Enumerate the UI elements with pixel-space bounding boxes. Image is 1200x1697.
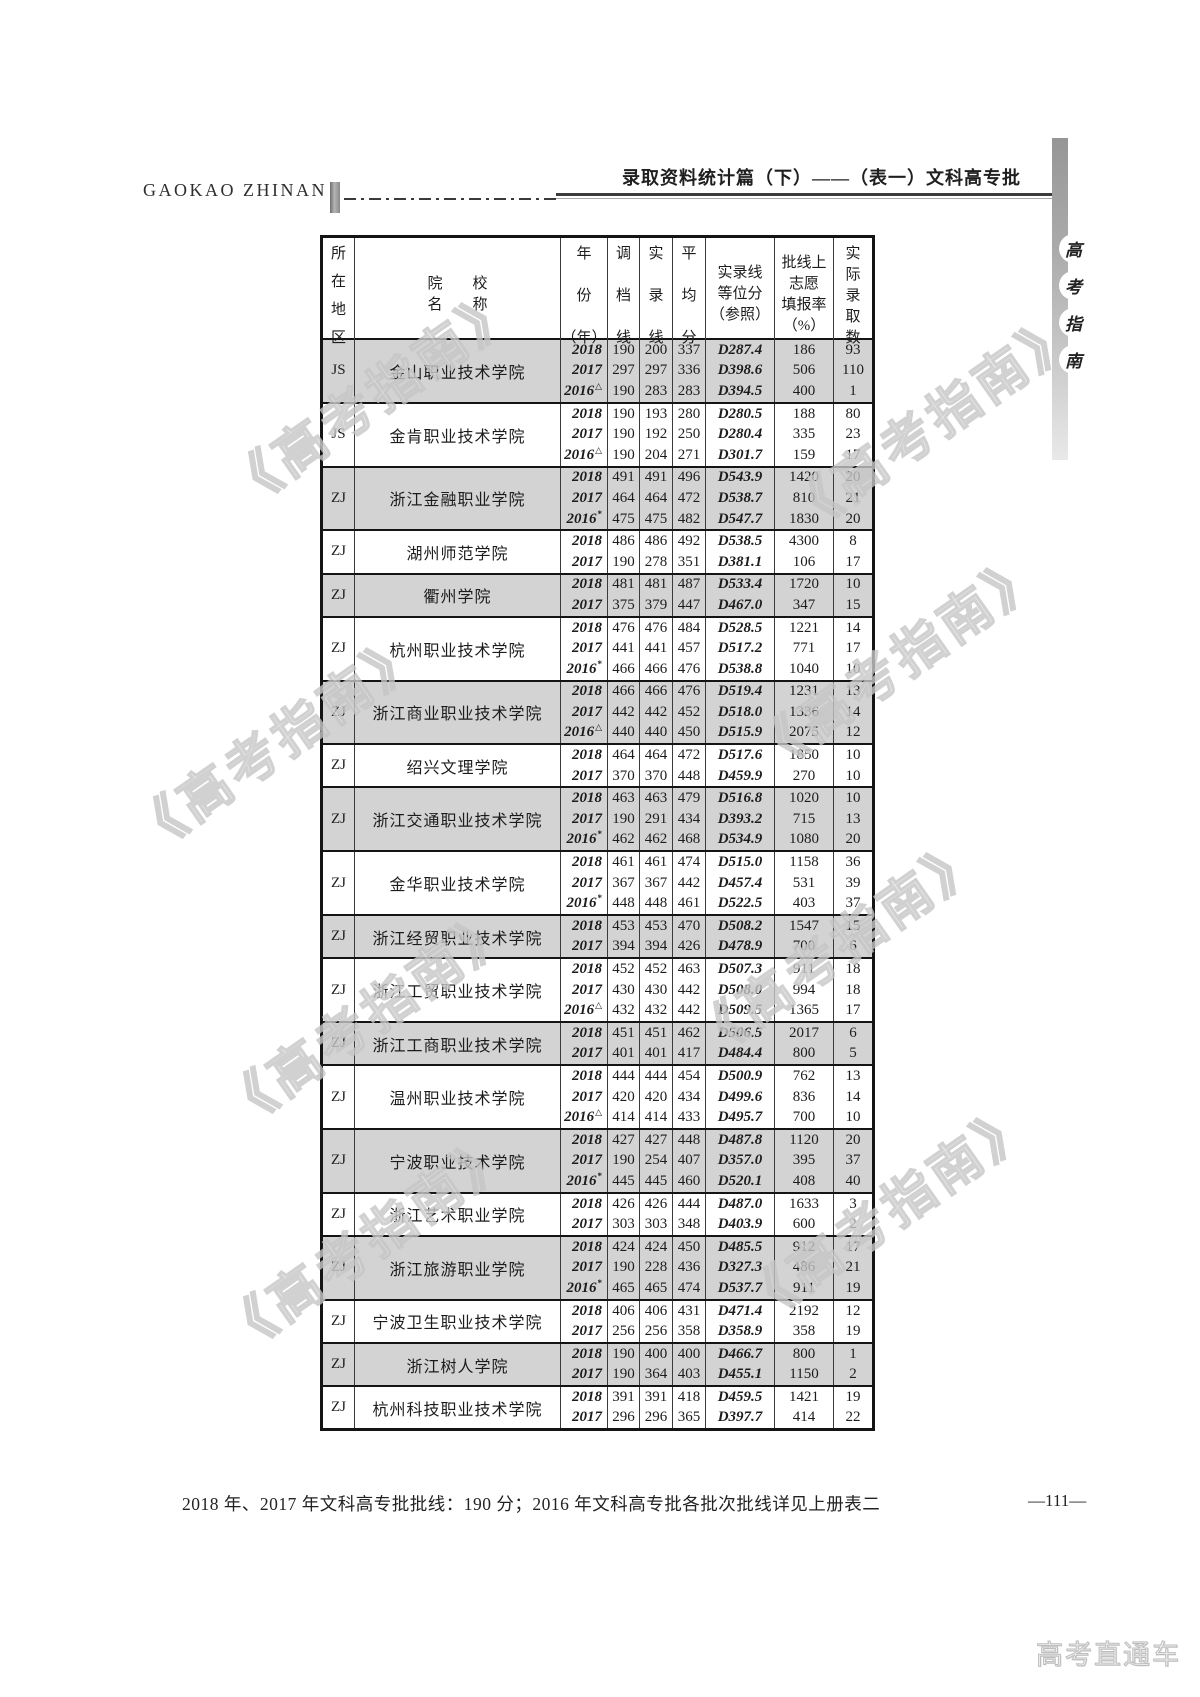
table-row-group: ZJ浙江工商职业技术学院2018451451462D506.5201762017… xyxy=(323,1021,872,1064)
luqu-count: 40 xyxy=(834,1171,872,1192)
sidebar-band xyxy=(1052,138,1068,460)
diaodang-score: 475 xyxy=(608,509,640,530)
college-name: 浙江旅游职业学院 xyxy=(355,1237,561,1299)
shilu-score: 453 xyxy=(640,916,673,937)
year-value: 2016△ xyxy=(561,381,608,402)
pingjun-score: 496 xyxy=(673,468,706,489)
diaodang-score: 461 xyxy=(608,852,640,873)
table-row-group: ZJ浙江树人学院2018190400400D466.78001201719036… xyxy=(323,1342,872,1385)
year-value: 2018 xyxy=(561,682,608,703)
region-code: ZJ xyxy=(323,618,355,680)
dengwei-score: D547.7 xyxy=(706,509,775,530)
tianbao-rate: 1040 xyxy=(775,659,834,680)
year-value: 2016* xyxy=(561,830,608,851)
shilu-score: 486 xyxy=(640,531,673,552)
diaodang-score: 466 xyxy=(608,682,640,703)
shilu-score: 291 xyxy=(640,809,673,830)
dengwei-score: D520.1 xyxy=(706,1171,775,1192)
dengwei-score: D499.6 xyxy=(706,1087,775,1108)
pingjun-score: 351 xyxy=(673,552,706,573)
luqu-count: 20 xyxy=(834,509,872,530)
year-value: 2018 xyxy=(561,340,608,361)
year-value: 2017 xyxy=(561,809,608,830)
pingjun-score: 461 xyxy=(673,893,706,914)
dengwei-score: D538.7 xyxy=(706,488,775,509)
table-row-group: ZJ绍兴文理学院2018464464472D517.61850102017370… xyxy=(323,743,872,786)
region-code: ZJ xyxy=(323,959,355,1021)
shilu-score: 427 xyxy=(640,1130,673,1151)
tianbao-rate: 2192 xyxy=(775,1301,834,1322)
tianbao-rate: 414 xyxy=(775,1408,834,1429)
table-row-group: ZJ浙江金融职业学院2018491491496D543.914202020174… xyxy=(323,466,872,530)
table-row-group: ZJ杭州科技职业技术学院2018391391418D459.5142119201… xyxy=(323,1385,872,1428)
pingjun-score: 336 xyxy=(673,361,706,382)
year-value: 2017 xyxy=(561,702,608,723)
tianbao-rate: 1020 xyxy=(775,788,834,809)
tianbao-rate: 4300 xyxy=(775,531,834,552)
pingjun-score: 450 xyxy=(673,1237,706,1258)
region-code: ZJ xyxy=(323,1023,355,1064)
shilu-score: 401 xyxy=(640,1044,673,1065)
pingjun-score: 431 xyxy=(673,1301,706,1322)
tianbao-rate: 1830 xyxy=(775,509,834,530)
brand-text: GAOKAO ZHINAN xyxy=(143,180,327,201)
table-row-group: ZJ浙江交通职业技术学院2018463463479D516.8102010201… xyxy=(323,786,872,850)
shilu-score: 204 xyxy=(640,445,673,466)
luqu-count: 17 xyxy=(834,445,872,466)
tianbao-rate: 1120 xyxy=(775,1130,834,1151)
table-row-group: ZJ温州职业技术学院2018444444454D500.976213201742… xyxy=(323,1064,872,1128)
year-value: 2016* xyxy=(561,1278,608,1299)
year-value: 2017 xyxy=(561,424,608,445)
luqu-count: 36 xyxy=(834,852,872,873)
shilu-score: 476 xyxy=(640,618,673,639)
diaodang-score: 463 xyxy=(608,788,640,809)
year-value: 2017 xyxy=(561,488,608,509)
pingjun-score: 450 xyxy=(673,723,706,744)
dengwei-score: D538.8 xyxy=(706,659,775,680)
admissions-table: 所在地区院 校名 称年份（年）调档线实录线平均分实录线等位分（参照）批线上志愿填… xyxy=(320,235,875,1431)
sidebar-char-zhi: 指 xyxy=(1059,308,1088,337)
year-value: 2017 xyxy=(561,1044,608,1065)
luqu-count: 21 xyxy=(834,1258,872,1279)
dengwei-score: D543.9 xyxy=(706,468,775,489)
pingjun-score: 434 xyxy=(673,809,706,830)
dengwei-score: D478.9 xyxy=(706,937,775,958)
header-year: 年份（年） xyxy=(561,238,608,351)
luqu-count: 18 xyxy=(834,959,872,980)
pingjun-score: 479 xyxy=(673,788,706,809)
shilu-score: 370 xyxy=(640,766,673,787)
year-value: 2017 xyxy=(561,1321,608,1342)
tianbao-rate: 762 xyxy=(775,1066,834,1087)
diaodang-score: 190 xyxy=(608,1365,640,1386)
tianbao-rate: 408 xyxy=(775,1171,834,1192)
pingjun-score: 454 xyxy=(673,1066,706,1087)
year-value: 2016△ xyxy=(561,1107,608,1128)
shilu-score: 367 xyxy=(640,873,673,894)
luqu-count: 13 xyxy=(834,682,872,703)
pingjun-score: 470 xyxy=(673,916,706,937)
shilu-score: 475 xyxy=(640,509,673,530)
region-code: ZJ xyxy=(323,1344,355,1385)
luqu-count: 5 xyxy=(834,1044,872,1065)
shilu-score: 464 xyxy=(640,745,673,766)
pingjun-score: 365 xyxy=(673,1408,706,1429)
year-value: 2017 xyxy=(561,552,608,573)
sidebar-char-gao: 高 xyxy=(1059,234,1088,263)
diaodang-score: 453 xyxy=(608,916,640,937)
dash-dot-rule xyxy=(344,198,556,200)
diaodang-score: 367 xyxy=(608,873,640,894)
diaodang-score: 420 xyxy=(608,1087,640,1108)
luqu-count: 8 xyxy=(834,531,872,552)
luqu-count: 22 xyxy=(834,1408,872,1429)
luqu-count: 3 xyxy=(834,1194,872,1215)
shilu-score: 445 xyxy=(640,1171,673,1192)
year-footnote-mark: △ xyxy=(595,1001,602,1010)
dengwei-score: D519.4 xyxy=(706,682,775,703)
shilu-score: 444 xyxy=(640,1066,673,1087)
pingjun-score: 448 xyxy=(673,766,706,787)
tianbao-rate: 836 xyxy=(775,1087,834,1108)
luqu-count: 10 xyxy=(834,575,872,596)
luqu-count: 17 xyxy=(834,638,872,659)
year-value: 2018 xyxy=(561,959,608,980)
diaodang-score: 462 xyxy=(608,830,640,851)
luqu-count: 2 xyxy=(834,1365,872,1386)
tianbao-rate: 347 xyxy=(775,595,834,616)
year-value: 2017 xyxy=(561,638,608,659)
region-code: JS xyxy=(323,340,355,402)
pingjun-score: 447 xyxy=(673,595,706,616)
pingjun-score: 434 xyxy=(673,1087,706,1108)
year-value: 2018 xyxy=(561,1194,608,1215)
sidebar-char-nan: 南 xyxy=(1059,345,1088,374)
tianbao-rate: 335 xyxy=(775,424,834,445)
diaodang-score: 448 xyxy=(608,893,640,914)
college-name: 宁波卫生职业技术学院 xyxy=(355,1301,561,1342)
diaodang-score: 391 xyxy=(608,1387,640,1408)
pingjun-score: 400 xyxy=(673,1344,706,1365)
luqu-count: 37 xyxy=(834,893,872,914)
shilu-score: 481 xyxy=(640,575,673,596)
diaodang-score: 452 xyxy=(608,959,640,980)
dengwei-score: D381.1 xyxy=(706,552,775,573)
table-row-group: ZJ宁波卫生职业技术学院2018406406431D471.4219212201… xyxy=(323,1299,872,1342)
shilu-score: 254 xyxy=(640,1151,673,1172)
pingjun-score: 283 xyxy=(673,381,706,402)
shilu-score: 391 xyxy=(640,1387,673,1408)
region-code: ZJ xyxy=(323,916,355,957)
diaodang-score: 375 xyxy=(608,595,640,616)
tianbao-rate: 159 xyxy=(775,445,834,466)
diaodang-score: 190 xyxy=(608,809,640,830)
tianbao-rate: 2017 xyxy=(775,1023,834,1044)
footer-note: 2018 年、2017 年文科高专批批线：190 分；2016 年文科高专批各批… xyxy=(182,1491,880,1516)
shilu-score: 461 xyxy=(640,852,673,873)
diaodang-score: 491 xyxy=(608,468,640,489)
header-pingjun-score: 平均分 xyxy=(673,238,706,351)
pingjun-score: 426 xyxy=(673,937,706,958)
luqu-count: 19 xyxy=(834,1278,872,1299)
dengwei-score: D287.4 xyxy=(706,340,775,361)
dengwei-score: D459.9 xyxy=(706,766,775,787)
pingjun-score: 460 xyxy=(673,1171,706,1192)
pingjun-score: 476 xyxy=(673,682,706,703)
luqu-count: 20 xyxy=(834,468,872,489)
tianbao-rate: 600 xyxy=(775,1214,834,1235)
tianbao-rate: 715 xyxy=(775,809,834,830)
tianbao-rate: 1420 xyxy=(775,468,834,489)
shilu-score: 256 xyxy=(640,1321,673,1342)
diaodang-score: 442 xyxy=(608,702,640,723)
dengwei-score: D515.0 xyxy=(706,852,775,873)
header-luqu-count: 实际录取数 xyxy=(834,238,872,351)
luqu-count: 6 xyxy=(834,937,872,958)
shilu-score: 278 xyxy=(640,552,673,573)
table-row-group: ZJ浙江艺术职业学院2018426426444D487.016333201730… xyxy=(323,1192,872,1235)
page-title: 录取资料统计篇（下）——（表一）文科高专批 xyxy=(622,164,1021,190)
region-code: ZJ xyxy=(323,788,355,850)
region-code: ZJ xyxy=(323,682,355,744)
pingjun-score: 474 xyxy=(673,852,706,873)
shilu-score: 283 xyxy=(640,381,673,402)
tianbao-rate: 911 xyxy=(775,959,834,980)
year-value: 2018 xyxy=(561,1344,608,1365)
header-shilu-line: 实录线 xyxy=(640,238,673,351)
tianbao-rate: 810 xyxy=(775,488,834,509)
diaodang-score: 190 xyxy=(608,1151,640,1172)
diaodang-score: 190 xyxy=(608,340,640,361)
college-name: 金华职业技术学院 xyxy=(355,852,561,914)
year-footnote-mark: △ xyxy=(595,1108,602,1117)
dengwei-score: D398.6 xyxy=(706,361,775,382)
diaodang-score: 430 xyxy=(608,980,640,1001)
shilu-score: 297 xyxy=(640,361,673,382)
shilu-score: 379 xyxy=(640,595,673,616)
pingjun-score: 271 xyxy=(673,445,706,466)
college-name: 温州职业技术学院 xyxy=(355,1066,561,1128)
year-value: 2018 xyxy=(561,468,608,489)
tianbao-rate: 1720 xyxy=(775,575,834,596)
pingjun-score: 337 xyxy=(673,340,706,361)
year-value: 2018 xyxy=(561,852,608,873)
year-value: 2018 xyxy=(561,1066,608,1087)
pingjun-score: 442 xyxy=(673,873,706,894)
shilu-score: 394 xyxy=(640,937,673,958)
diaodang-score: 406 xyxy=(608,1301,640,1322)
year-value: 2018 xyxy=(561,1237,608,1258)
tianbao-rate: 1336 xyxy=(775,702,834,723)
header-college: 院 校名 称 xyxy=(355,238,561,351)
diaodang-score: 451 xyxy=(608,1023,640,1044)
year-footnote-mark: * xyxy=(598,660,603,669)
tianbao-rate: 1633 xyxy=(775,1194,834,1215)
dengwei-score: D484.4 xyxy=(706,1044,775,1065)
shilu-score: 192 xyxy=(640,424,673,445)
dengwei-score: D538.5 xyxy=(706,531,775,552)
dengwei-score: D455.1 xyxy=(706,1365,775,1386)
tianbao-rate: 106 xyxy=(775,552,834,573)
luqu-count: 17 xyxy=(834,552,872,573)
year-value: 2016* xyxy=(561,893,608,914)
luqu-count: 37 xyxy=(834,1151,872,1172)
shilu-score: 451 xyxy=(640,1023,673,1044)
dengwei-score: D487.8 xyxy=(706,1130,775,1151)
tianbao-rate: 400 xyxy=(775,381,834,402)
luqu-count: 15 xyxy=(834,916,872,937)
luqu-count: 19 xyxy=(834,1321,872,1342)
dengwei-score: D522.5 xyxy=(706,893,775,914)
year-value: 2017 xyxy=(561,361,608,382)
year-value: 2016* xyxy=(561,509,608,530)
diaodang-score: 444 xyxy=(608,1066,640,1087)
table-row-group: ZJ湖州师范学院2018486486492D538.54300820171902… xyxy=(323,529,872,572)
diaodang-score: 445 xyxy=(608,1171,640,1192)
year-footnote-mark: △ xyxy=(595,382,602,391)
year-value: 2018 xyxy=(561,788,608,809)
tianbao-rate: 1080 xyxy=(775,830,834,851)
college-name: 浙江商业职业技术学院 xyxy=(355,682,561,744)
pingjun-score: 472 xyxy=(673,745,706,766)
dengwei-score: D517.2 xyxy=(706,638,775,659)
pingjun-score: 474 xyxy=(673,1278,706,1299)
header-tianbao-rate: 批线上志愿填报率（%） xyxy=(775,238,834,351)
shilu-score: 442 xyxy=(640,702,673,723)
diaodang-score: 465 xyxy=(608,1278,640,1299)
shilu-score: 440 xyxy=(640,723,673,744)
tianbao-rate: 1221 xyxy=(775,618,834,639)
shilu-score: 463 xyxy=(640,788,673,809)
shilu-score: 432 xyxy=(640,1000,673,1021)
dengwei-score: D528.5 xyxy=(706,618,775,639)
year-value: 2018 xyxy=(561,531,608,552)
shilu-score: 491 xyxy=(640,468,673,489)
luqu-count: 19 xyxy=(834,1387,872,1408)
diaodang-score: 432 xyxy=(608,1000,640,1021)
pingjun-score: 418 xyxy=(673,1387,706,1408)
shilu-score: 200 xyxy=(640,340,673,361)
shilu-score: 464 xyxy=(640,488,673,509)
table-row-group: ZJ浙江旅游职业学院2018424424450D485.591217201719… xyxy=(323,1235,872,1299)
header-rule xyxy=(556,193,1065,199)
luqu-count: 18 xyxy=(834,980,872,1001)
pingjun-score: 407 xyxy=(673,1151,706,1172)
table-row-group: ZJ金华职业技术学院2018461461474D515.011583620173… xyxy=(323,850,872,914)
sidebar-char-kao: 考 xyxy=(1059,271,1088,300)
pingjun-score: 448 xyxy=(673,1130,706,1151)
pingjun-score: 442 xyxy=(673,1000,706,1021)
dengwei-score: D537.7 xyxy=(706,1278,775,1299)
table-row-group: ZJ宁波职业技术学院2018427427448D487.811202020171… xyxy=(323,1128,872,1192)
region-code: ZJ xyxy=(323,1387,355,1428)
dengwei-score: D457.4 xyxy=(706,873,775,894)
college-name: 湖州师范学院 xyxy=(355,531,561,572)
year-footnote-mark: * xyxy=(598,1279,603,1288)
dengwei-score: D357.0 xyxy=(706,1151,775,1172)
shilu-score: 426 xyxy=(640,1194,673,1215)
luqu-count: 13 xyxy=(834,1066,872,1087)
luqu-count: 20 xyxy=(834,1130,872,1151)
dengwei-score: D471.4 xyxy=(706,1301,775,1322)
diaodang-score: 464 xyxy=(608,488,640,509)
pingjun-score: 403 xyxy=(673,1365,706,1386)
shilu-score: 193 xyxy=(640,404,673,425)
dengwei-score: D393.2 xyxy=(706,809,775,830)
year-value: 2018 xyxy=(561,404,608,425)
year-value: 2017 xyxy=(561,1365,608,1386)
year-footnote-mark: * xyxy=(598,1172,603,1181)
year-value: 2017 xyxy=(561,595,608,616)
pingjun-score: 452 xyxy=(673,702,706,723)
luqu-count: 23 xyxy=(834,424,872,445)
shilu-score: 414 xyxy=(640,1107,673,1128)
pingjun-score: 250 xyxy=(673,424,706,445)
pingjun-score: 348 xyxy=(673,1214,706,1235)
tianbao-rate: 1850 xyxy=(775,745,834,766)
shilu-score: 465 xyxy=(640,1278,673,1299)
dengwei-score: D518.0 xyxy=(706,702,775,723)
luqu-count: 1 xyxy=(834,1344,872,1365)
luqu-count: 12 xyxy=(834,1301,872,1322)
pingjun-score: 417 xyxy=(673,1044,706,1065)
diaodang-score: 256 xyxy=(608,1321,640,1342)
pingjun-score: 484 xyxy=(673,618,706,639)
diaodang-score: 427 xyxy=(608,1130,640,1151)
luqu-count: 110 xyxy=(834,361,872,382)
luqu-count: 6 xyxy=(834,1023,872,1044)
pingjun-score: 462 xyxy=(673,1023,706,1044)
shilu-score: 452 xyxy=(640,959,673,980)
diaodang-score: 401 xyxy=(608,1044,640,1065)
year-value: 2018 xyxy=(561,1130,608,1151)
dengwei-score: D508.0 xyxy=(706,980,775,1001)
shilu-score: 400 xyxy=(640,1344,673,1365)
shilu-score: 424 xyxy=(640,1237,673,1258)
corner-watermark: 高考直通车 xyxy=(1036,1633,1181,1672)
year-footnote-mark: △ xyxy=(595,723,602,732)
region-code: ZJ xyxy=(323,852,355,914)
table-row-group: ZJ浙江工贸职业技术学院2018452452463D507.3911182017… xyxy=(323,957,872,1021)
dengwei-score: D509.5 xyxy=(706,1000,775,1021)
year-value: 2017 xyxy=(561,980,608,1001)
pingjun-score: 492 xyxy=(673,531,706,552)
dengwei-score: D394.5 xyxy=(706,381,775,402)
table-row-group: ZJ浙江商业职业技术学院2018466466476D519.4123113201… xyxy=(323,680,872,744)
header-divider-bar xyxy=(330,182,340,213)
diaodang-score: 394 xyxy=(608,937,640,958)
tianbao-rate: 700 xyxy=(775,937,834,958)
tianbao-rate: 911 xyxy=(775,1278,834,1299)
tianbao-rate: 700 xyxy=(775,1107,834,1128)
luqu-count: 2 xyxy=(834,1214,872,1235)
luqu-count: 20 xyxy=(834,830,872,851)
pingjun-score: 487 xyxy=(673,575,706,596)
year-value: 2016* xyxy=(561,659,608,680)
year-value: 2018 xyxy=(561,575,608,596)
region-code: ZJ xyxy=(323,1301,355,1342)
shilu-score: 430 xyxy=(640,980,673,1001)
tianbao-rate: 270 xyxy=(775,766,834,787)
dengwei-score: D485.5 xyxy=(706,1237,775,1258)
diaodang-score: 426 xyxy=(608,1194,640,1215)
dengwei-score: D466.7 xyxy=(706,1344,775,1365)
dengwei-score: D495.7 xyxy=(706,1107,775,1128)
pingjun-score: 482 xyxy=(673,509,706,530)
tianbao-rate: 1421 xyxy=(775,1387,834,1408)
table-row-group: JS金山职业技术学院2018190200337D287.418693201729… xyxy=(323,340,872,402)
